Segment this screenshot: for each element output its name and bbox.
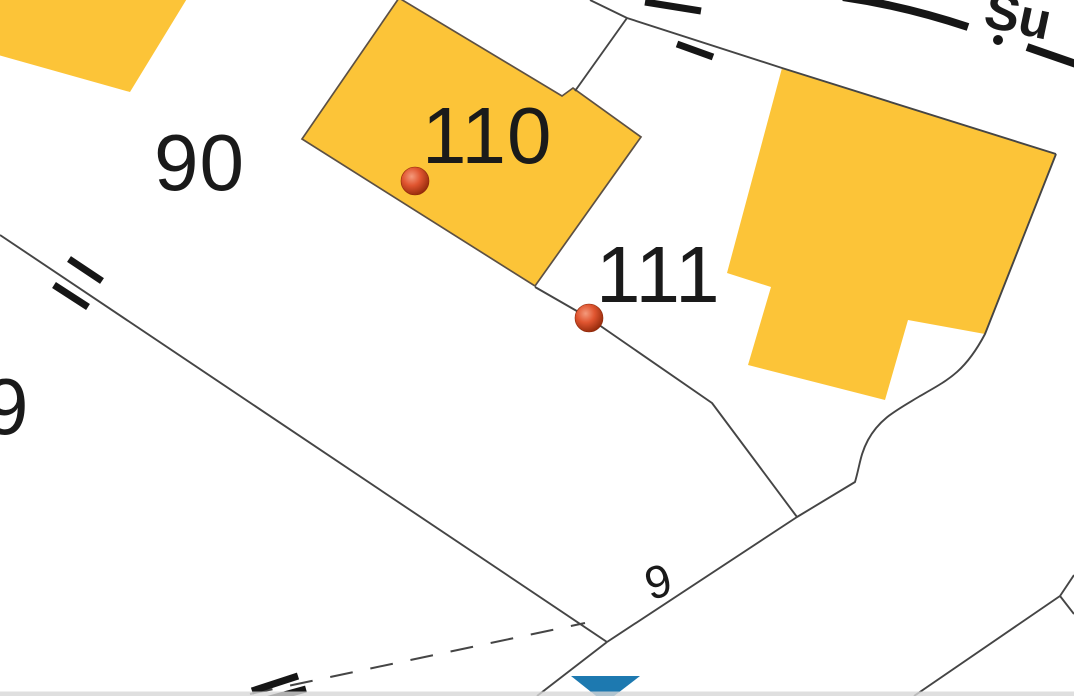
map-viewport[interactable]: 90 110 111 9 9 Su [0, 0, 1074, 696]
parcel-number-90: 90 [154, 118, 245, 207]
cadastral-map-canvas[interactable]: 90 110 111 9 9 Su [0, 0, 1074, 696]
map-bottom-edge-bar [0, 692, 1074, 696]
parcel-number-edge-partial: 9 [0, 362, 30, 451]
parcel-number-110: 110 [422, 91, 553, 180]
parcel-number-111: 111 [596, 230, 721, 319]
